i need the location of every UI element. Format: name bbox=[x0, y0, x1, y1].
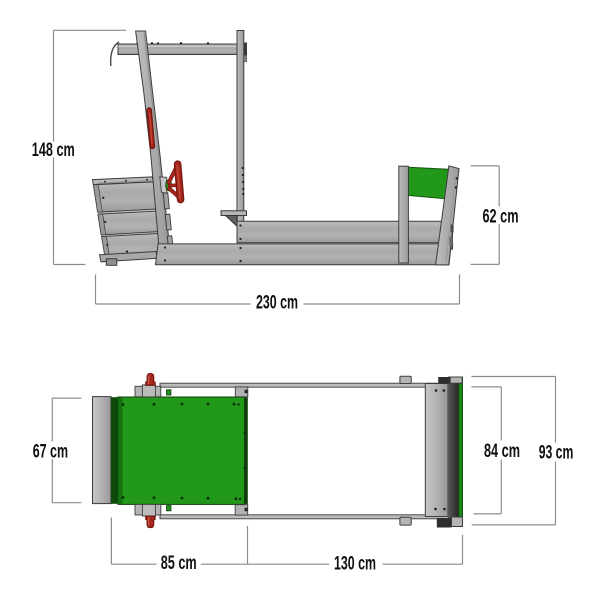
svg-text:130 cm: 130 cm bbox=[334, 553, 376, 575]
svg-text:93 cm: 93 cm bbox=[539, 441, 574, 463]
svg-text:84 cm: 84 cm bbox=[484, 440, 520, 462]
svg-text:67 cm: 67 cm bbox=[33, 440, 68, 462]
svg-text:230 cm: 230 cm bbox=[256, 291, 298, 313]
svg-text:62 cm: 62 cm bbox=[483, 206, 519, 228]
svg-text:85 cm: 85 cm bbox=[161, 552, 197, 574]
svg-text:148 cm: 148 cm bbox=[32, 139, 75, 161]
